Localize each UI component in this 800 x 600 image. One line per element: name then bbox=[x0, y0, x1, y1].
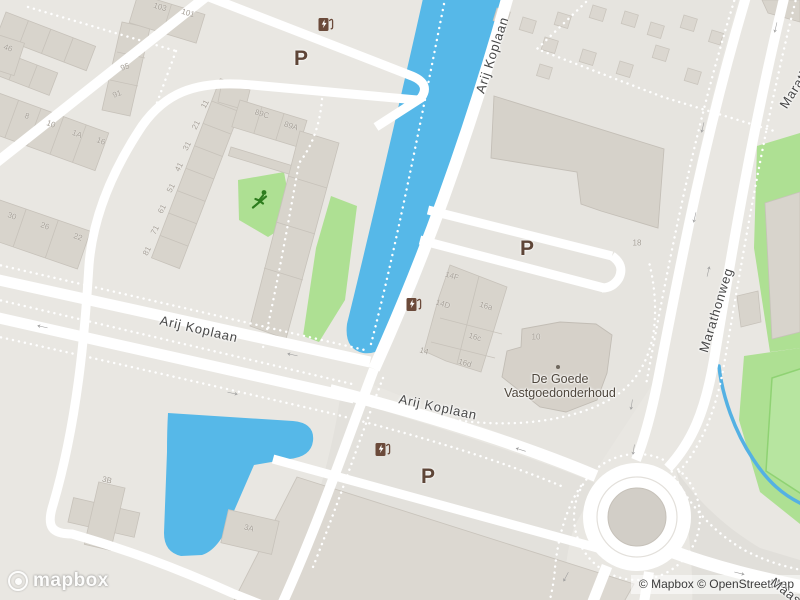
house-number: 14 bbox=[418, 345, 429, 356]
house-number: 16 bbox=[95, 135, 106, 147]
house-number: 89C bbox=[254, 108, 271, 121]
oneway-arrow-icon: → bbox=[697, 261, 716, 281]
poi-label-line1: De Goede bbox=[504, 372, 616, 386]
house-number: 95 bbox=[119, 61, 130, 73]
house-number: 26 bbox=[39, 220, 50, 231]
parking-label: P bbox=[520, 237, 534, 261]
oneway-arrow-icon: → bbox=[627, 440, 645, 460]
house-number: 14F bbox=[444, 270, 460, 283]
mapbox-logo[interactable]: mapbox bbox=[8, 570, 109, 592]
house-number: 16a bbox=[478, 300, 493, 313]
ev-charging-icon bbox=[374, 441, 392, 463]
street-label: Arij Koplaan bbox=[397, 391, 478, 422]
oneway-arrow-icon: → bbox=[282, 348, 302, 367]
house-number: 10 bbox=[532, 333, 541, 342]
mapbox-logo-icon bbox=[8, 571, 28, 591]
house-number: 21 bbox=[190, 119, 202, 131]
house-number: 10 bbox=[45, 118, 56, 130]
house-number: 16c bbox=[468, 331, 483, 343]
house-number: 81 bbox=[141, 245, 153, 257]
house-number: 3B bbox=[101, 475, 113, 486]
house-number: 61 bbox=[156, 203, 168, 215]
house-number: 14D bbox=[435, 298, 452, 311]
street-label: Marathonweg bbox=[776, 29, 800, 111]
house-number: 31 bbox=[181, 140, 193, 152]
ev-charging-icon bbox=[405, 296, 423, 318]
poi-label-line2: Vastgoedonderhoud bbox=[504, 386, 616, 400]
playground-icon bbox=[249, 188, 273, 217]
oneway-arrow-icon: → bbox=[223, 382, 243, 401]
oneway-arrow-icon: → bbox=[32, 320, 52, 339]
poi-label-de-goede: De Goede Vastgoedonderhoud bbox=[504, 372, 616, 400]
house-number: 8 bbox=[23, 111, 30, 121]
street-label: Arij Koplaan bbox=[158, 313, 239, 346]
oneway-arrow-icon: → bbox=[557, 567, 578, 590]
label-overlay: De Goede Vastgoedonderhoud © Mapbox © Op… bbox=[0, 0, 800, 600]
oneway-arrow-icon: → bbox=[688, 208, 707, 228]
house-number: 18 bbox=[633, 239, 642, 248]
parking-label: P bbox=[421, 465, 435, 489]
house-number: 1A bbox=[71, 128, 83, 140]
oneway-arrow-icon: → bbox=[625, 395, 643, 415]
oneway-arrow-icon: → bbox=[769, 18, 788, 38]
street-label: Arij Koplaan bbox=[473, 15, 512, 95]
house-number: 22 bbox=[72, 231, 83, 242]
house-number: 101 bbox=[180, 7, 195, 20]
oneway-arrow-icon: → bbox=[509, 442, 530, 462]
house-number: 16d bbox=[457, 357, 472, 370]
house-number: 41 bbox=[173, 161, 185, 173]
poi-dot-de-goede bbox=[556, 365, 560, 369]
house-number: 103 bbox=[152, 1, 167, 14]
house-number: 91 bbox=[111, 88, 122, 100]
house-number: 46 bbox=[2, 42, 13, 53]
house-number: 11 bbox=[199, 98, 211, 110]
house-number: 30 bbox=[6, 210, 17, 221]
house-number: 3A bbox=[243, 523, 255, 534]
mapbox-logo-text: mapbox bbox=[33, 570, 109, 592]
ev-charging-icon bbox=[317, 16, 335, 38]
parking-label: P bbox=[294, 47, 308, 71]
house-number: 51 bbox=[165, 182, 177, 194]
house-number: 89A bbox=[283, 120, 299, 133]
oneway-arrow-icon: → bbox=[696, 118, 715, 138]
house-number: 71 bbox=[149, 224, 161, 236]
map-canvas[interactable]: De Goede Vastgoedonderhoud © Mapbox © Op… bbox=[0, 0, 800, 600]
